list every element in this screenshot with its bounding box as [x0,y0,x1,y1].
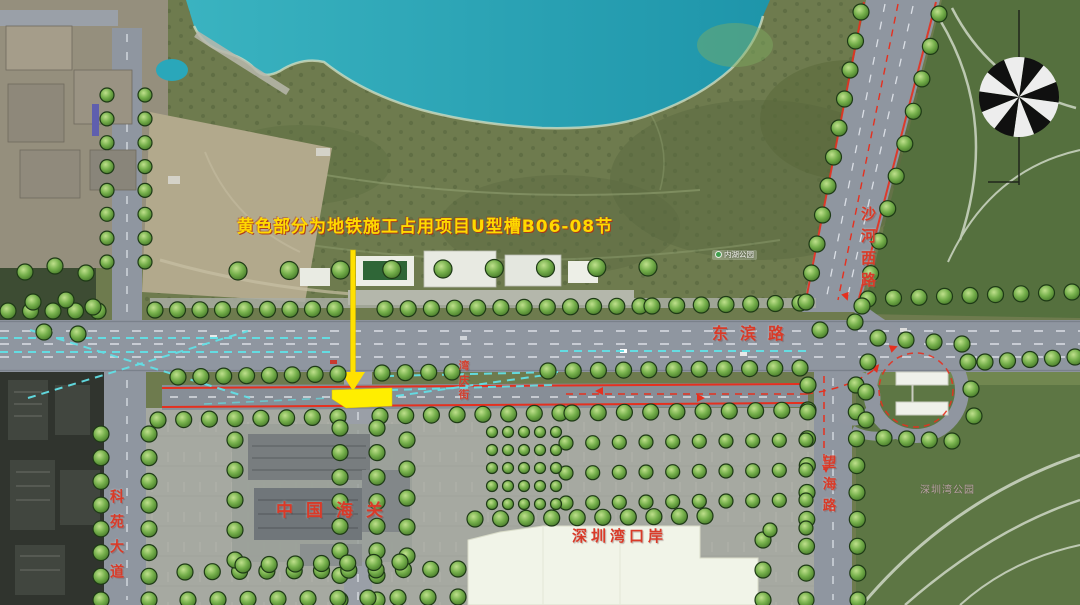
keyuan-avenue-road [104,372,146,605]
map-canvas [0,0,1080,605]
blue-banner [92,104,99,136]
satellite-planning-map: 黄色部分为地铁施工占用项目U型槽B06-08节 东滨路 沙河西路 科苑大道 望海… [0,0,1080,605]
southeast-park [856,372,1080,605]
u-trough-highlight [332,388,392,408]
annotation-arrow-shaft [351,250,356,374]
